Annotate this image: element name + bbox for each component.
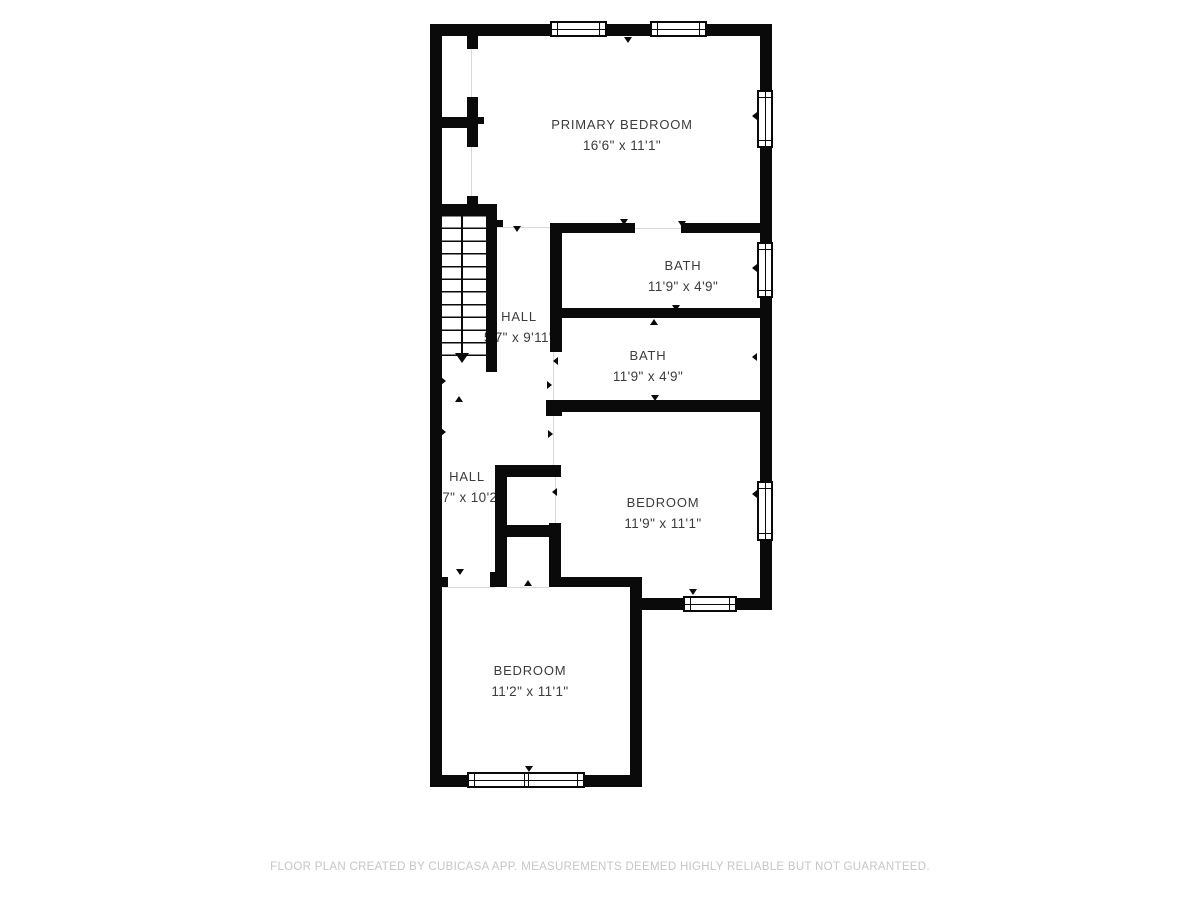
room-name: BATH (648, 259, 718, 273)
window-frame-line (599, 23, 600, 35)
door-jamb-icon (547, 381, 552, 389)
room-name: BEDROOM (624, 496, 701, 510)
door-swing-icon (513, 226, 521, 232)
room-dims: 5'7" x 10'2" (431, 491, 502, 505)
window-frame-line (729, 598, 730, 610)
window-pane-line (765, 92, 766, 146)
opening-line (443, 587, 495, 588)
door-jamb-icon (554, 272, 559, 280)
window-pane-line (652, 29, 705, 30)
room-label-bath-1: BATH 11'9" x 4'9" (648, 259, 718, 294)
door-swing-icon (624, 37, 632, 43)
opening-line (471, 48, 472, 97)
window-pane-line (552, 29, 605, 30)
door-swing-icon (456, 569, 464, 575)
room-label-bedroom-right: BEDROOM 11'9" x 11'1" (624, 496, 701, 531)
opening-line (635, 228, 681, 229)
room-dims: 11'9" x 11'1" (624, 517, 701, 531)
window-frame-line (759, 488, 771, 489)
window (550, 21, 607, 37)
door-swing-icon (525, 766, 533, 772)
room-dims: 11'9" x 4'9" (648, 280, 718, 294)
window-pane-line (765, 244, 766, 296)
window-marker-icon (752, 264, 757, 272)
room-dims: 11'2" x 11'1" (491, 685, 568, 699)
door-swing-icon (678, 221, 686, 227)
stairs (442, 215, 486, 367)
footer-disclaimer: FLOOR PLAN CREATED BY CUBICASA APP. MEAS… (0, 861, 1200, 873)
window (757, 481, 773, 541)
wall (467, 36, 478, 49)
window (757, 90, 773, 148)
wall (546, 400, 562, 416)
wall (546, 400, 772, 412)
room-name: HALL (431, 470, 502, 484)
window-frame-line (699, 23, 700, 35)
door-swing-icon (651, 395, 659, 401)
door-swing-icon (620, 219, 628, 225)
wall (550, 223, 562, 352)
door-swing-icon (650, 319, 658, 325)
wall (630, 577, 642, 787)
opening-line (471, 147, 472, 196)
window-pane-line (469, 780, 583, 781)
wall (681, 223, 772, 233)
room-label-bedroom-bottom: BEDROOM 11'2" x 11'1" (491, 664, 568, 699)
window-pane-line (765, 483, 766, 539)
window-frame-line (577, 774, 578, 786)
window-pane-line (685, 604, 735, 605)
window (757, 242, 773, 298)
room-label-bath-2: BATH 11'9" x 4'9" (613, 349, 683, 384)
door-jamb-icon (441, 377, 446, 385)
window-mullion-line (524, 774, 525, 786)
room-label-hall-2: HALL 5'7" x 10'2" (431, 470, 502, 505)
door-swing-icon (455, 396, 463, 402)
wall (486, 204, 497, 372)
room-name: PRIMARY BEDROOM (551, 118, 693, 132)
stairs-direction-line (461, 215, 463, 355)
window-frame-line (759, 533, 771, 534)
door-swing-icon (690, 406, 698, 412)
window (650, 21, 707, 37)
opening-line (553, 412, 554, 465)
door-swing-icon (689, 589, 697, 595)
wall (430, 24, 442, 787)
window-marker-icon (752, 112, 757, 120)
double-window (467, 772, 585, 788)
window (683, 596, 737, 612)
opening-line (497, 227, 550, 228)
window-frame-line (759, 290, 771, 291)
window-frame-line (759, 97, 771, 98)
window-marker-icon (752, 490, 757, 498)
room-label-primary-bedroom: PRIMARY BEDROOM 16'6" x 11'1" (551, 118, 693, 153)
window-frame-line (657, 23, 658, 35)
window-frame-line (759, 249, 771, 250)
wall (442, 577, 448, 587)
door-jamb-icon (478, 117, 484, 124)
door-jamb-icon (441, 428, 446, 436)
stairs-direction-arrow-icon (455, 353, 469, 363)
wall (553, 577, 637, 587)
door-jamb-icon (553, 357, 558, 365)
opening-line (555, 477, 556, 523)
window-frame-line (557, 23, 558, 35)
window-frame-line (759, 140, 771, 141)
window-marker-icon (752, 353, 757, 361)
room-dims: 11'9" x 4'9" (613, 370, 683, 384)
wall (550, 308, 772, 318)
wall (497, 525, 556, 537)
room-name: BATH (613, 349, 683, 363)
window-mullion-line (528, 774, 529, 786)
wall (490, 572, 507, 587)
door-jamb-icon (497, 220, 503, 227)
wall (430, 117, 478, 128)
window-frame-line (690, 598, 691, 610)
room-name: BEDROOM (491, 664, 568, 678)
door-jamb-icon (552, 488, 557, 496)
opening-line (507, 587, 549, 588)
door-swing-icon (524, 580, 532, 586)
door-jamb-icon (548, 430, 553, 438)
window-frame-line (474, 774, 475, 786)
room-dims: 16'6" x 11'1" (551, 139, 693, 153)
door-swing-icon (672, 305, 680, 311)
floor-plan: PRIMARY BEDROOM 16'6" x 11'1" BATH 11'9"… (0, 0, 1200, 900)
